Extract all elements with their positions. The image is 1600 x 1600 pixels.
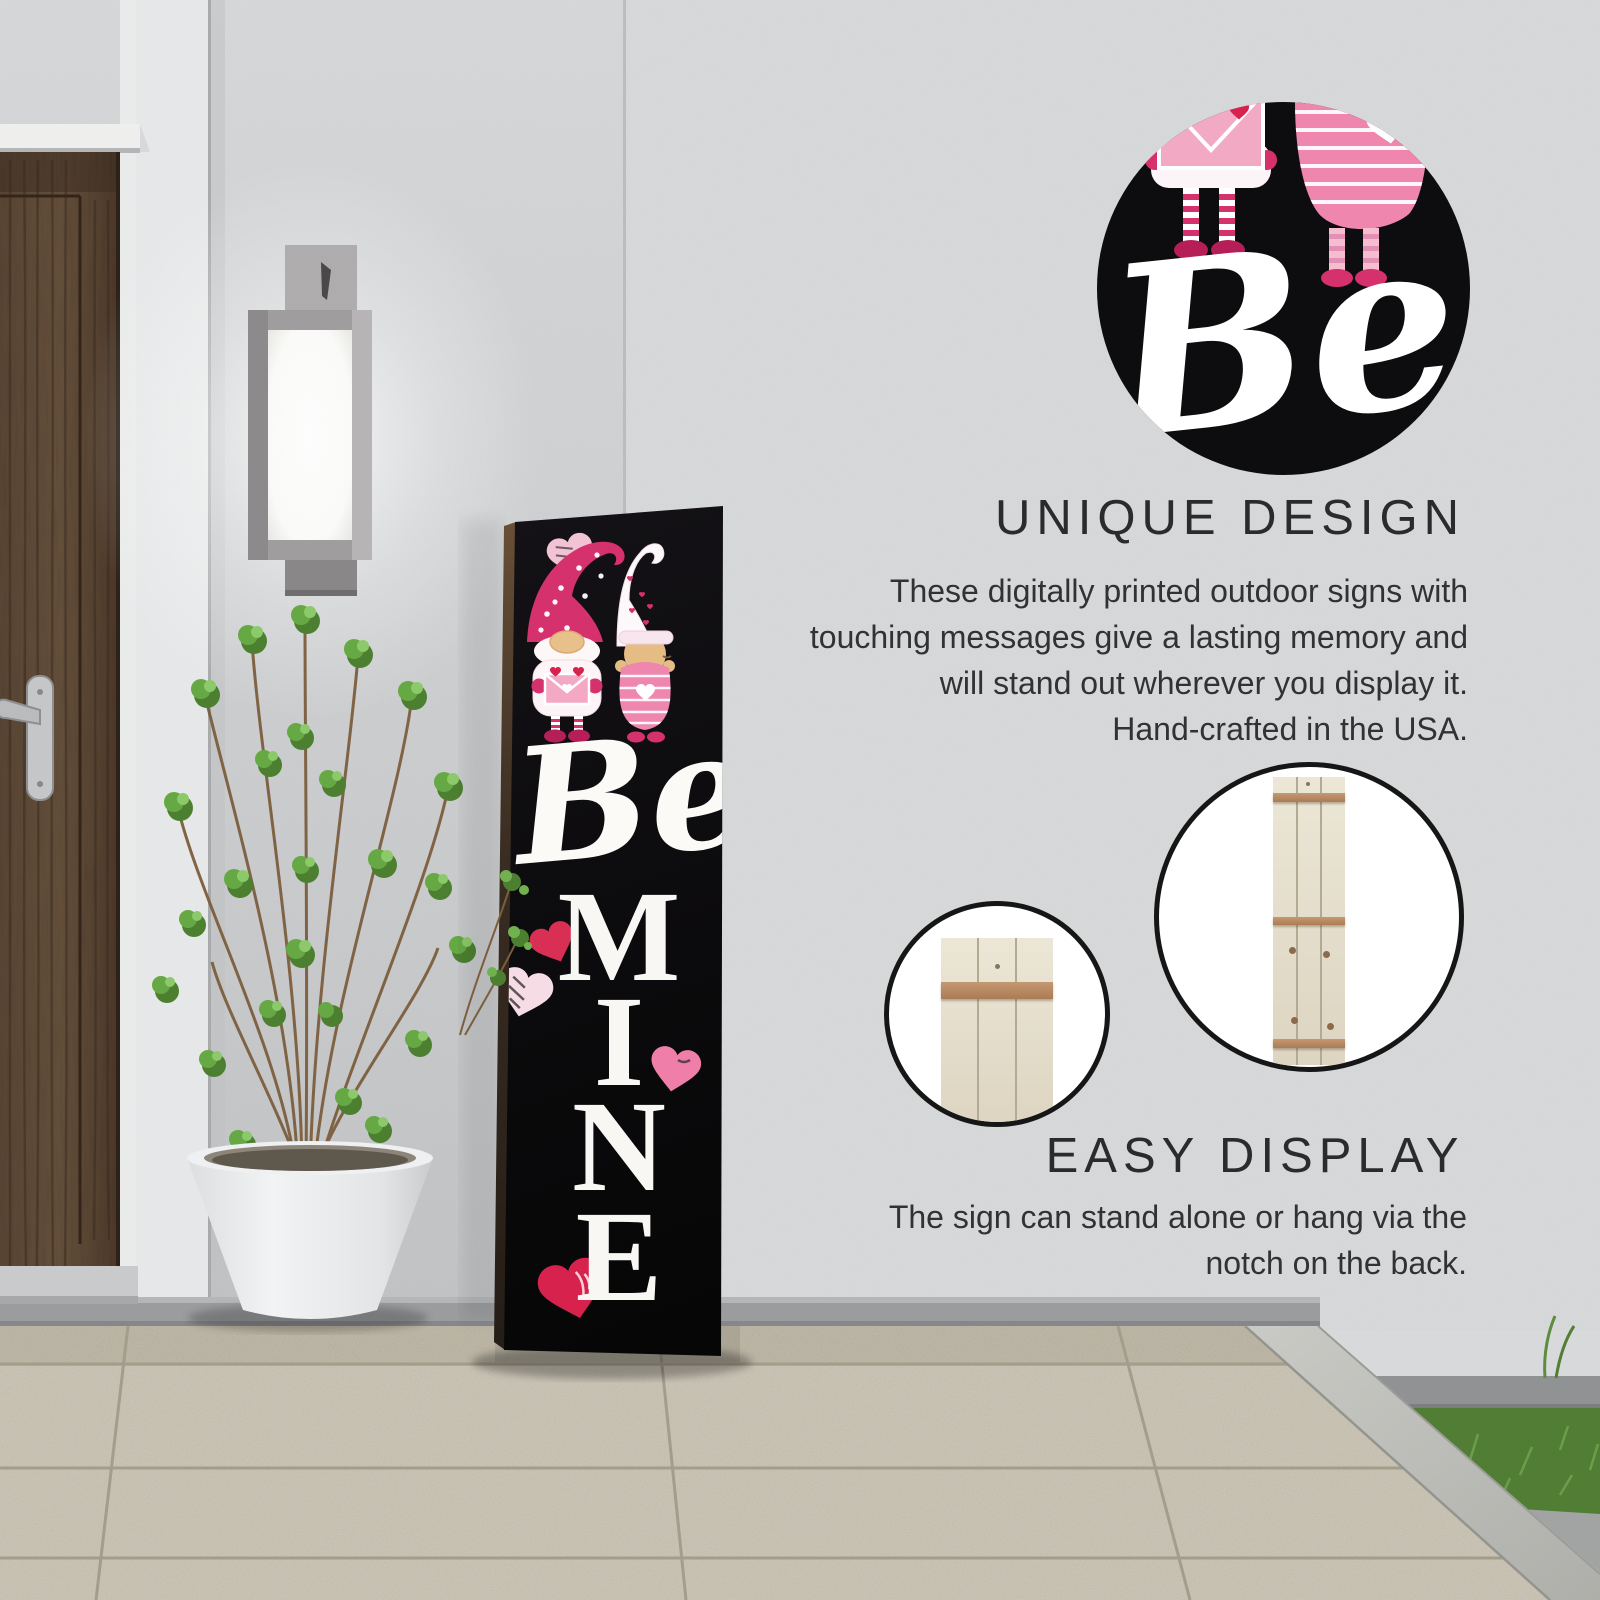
section-heading: UNIQUE DESIGN	[950, 492, 1510, 546]
porch-sign: Be M I N E	[492, 504, 724, 1360]
sign-script-word: Be	[507, 710, 730, 888]
text-line: notch on the back.	[780, 1240, 1467, 1286]
tile-floor	[0, 1326, 1600, 1600]
sign-letter: E	[514, 1192, 724, 1322]
wood-back-closeup	[941, 938, 1053, 1124]
love-letter	[545, 667, 589, 704]
sign-face: Be M I N E	[492, 504, 724, 1360]
design-detail-circle: Be	[1097, 102, 1470, 475]
left-gnome-hat	[527, 542, 625, 642]
detail-script-word: Be	[1097, 201, 1470, 474]
text-line: Hand-crafted in the USA.	[780, 706, 1468, 752]
wood-back-full	[1273, 777, 1345, 1065]
product-marketing-image: Be M I N E	[0, 0, 1600, 1600]
back-full-circle	[1154, 762, 1464, 1072]
unique-design-text: These digitally printed outdoor signs wi…	[780, 568, 1468, 752]
back-notch-circle	[884, 901, 1110, 1127]
right-gnome-hat	[617, 544, 664, 646]
text-line: These digitally printed outdoor signs wi…	[780, 568, 1468, 614]
text-line: will stand out wherever you display it.	[780, 660, 1468, 706]
easy-display-text: The sign can stand alone or hang via the…	[780, 1194, 1467, 1286]
text-line: touching messages give a lasting memory …	[780, 614, 1468, 660]
section-heading: EASY DISPLAY	[975, 1130, 1535, 1184]
text-line: The sign can stand alone or hang via the	[780, 1194, 1467, 1240]
heart-icon	[544, 530, 599, 581]
